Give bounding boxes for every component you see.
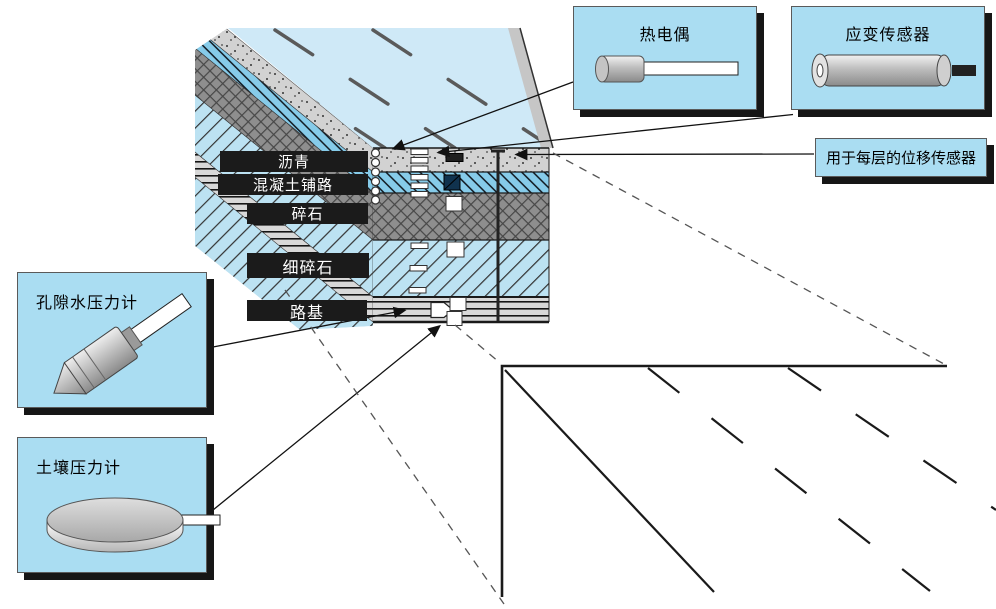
layer-label-subgrade: 路基 <box>247 300 367 321</box>
callout-strain-sensor: 应变传感器 <box>791 6 985 110</box>
displacement-anchor-concrete <box>444 175 460 190</box>
cross-section-face <box>373 148 549 322</box>
callout-thermocouple: 热电偶 <box>573 6 757 110</box>
zoom-dashed-line-bottom <box>285 290 504 604</box>
layer-label-fine-gravel-text: 细碎石 <box>282 254 333 278</box>
layer-label-gravel: 碎石 <box>247 203 368 224</box>
arrow-displacement-sensor <box>517 154 814 155</box>
displacement-anchor-top <box>446 154 463 162</box>
layer-label-asphalt: 沥青 <box>220 151 368 172</box>
layer-label-concrete-text: 混凝土铺路 <box>253 174 333 195</box>
callout-soil-pressure: 土壤压力计 <box>17 437 207 573</box>
callout-pore-pressure: 孔隙水压力计 <box>17 272 207 408</box>
pavement-sensor-diagram: 热电偶 应变传感器 用于每层的位移传感器 孔隙水压力计 <box>0 0 996 609</box>
callout-thermocouple-label: 热电偶 <box>574 7 756 45</box>
plan-road-edge-diagonal <box>505 370 714 592</box>
soil-pressure-plate-2 <box>447 312 462 326</box>
layer-label-subgrade-text: 路基 <box>290 299 324 323</box>
callout-displacement-sensor-label: 用于每层的位移传感器 <box>826 147 976 168</box>
callout-displacement-sensor: 用于每层的位移传感器 <box>815 138 987 177</box>
road-plan-view <box>502 366 996 597</box>
callout-soil-pressure-label: 土壤压力计 <box>18 438 206 478</box>
plan-lane-dash-line <box>788 368 996 510</box>
zoom-dashed-line-mid <box>455 325 499 362</box>
zoom-dashed-line-top <box>553 153 944 364</box>
arrow-soil-pressure <box>213 327 439 511</box>
pore-pressure-probe-icon <box>32 289 208 409</box>
soil-pressure-disc-icon <box>40 490 222 562</box>
layer-label-gravel-text: 碎石 <box>291 203 323 224</box>
thermocouple-probe-icon <box>594 53 744 87</box>
callout-strain-sensor-label: 应变传感器 <box>792 7 984 45</box>
layer-label-concrete: 混凝土铺路 <box>218 174 368 195</box>
soil-pressure-plate-1 <box>450 298 466 311</box>
displacement-anchor-fine-gravel <box>447 242 464 257</box>
layer-label-fine-gravel: 细碎石 <box>247 253 369 278</box>
displacement-anchor-gravel <box>446 197 462 212</box>
plan-road-corner <box>502 366 947 597</box>
plan-lane-dash-line <box>648 368 930 591</box>
strain-gauge-icon <box>810 51 980 91</box>
layer-label-asphalt-text: 沥青 <box>278 151 310 172</box>
layer-face-concrete <box>373 172 549 193</box>
